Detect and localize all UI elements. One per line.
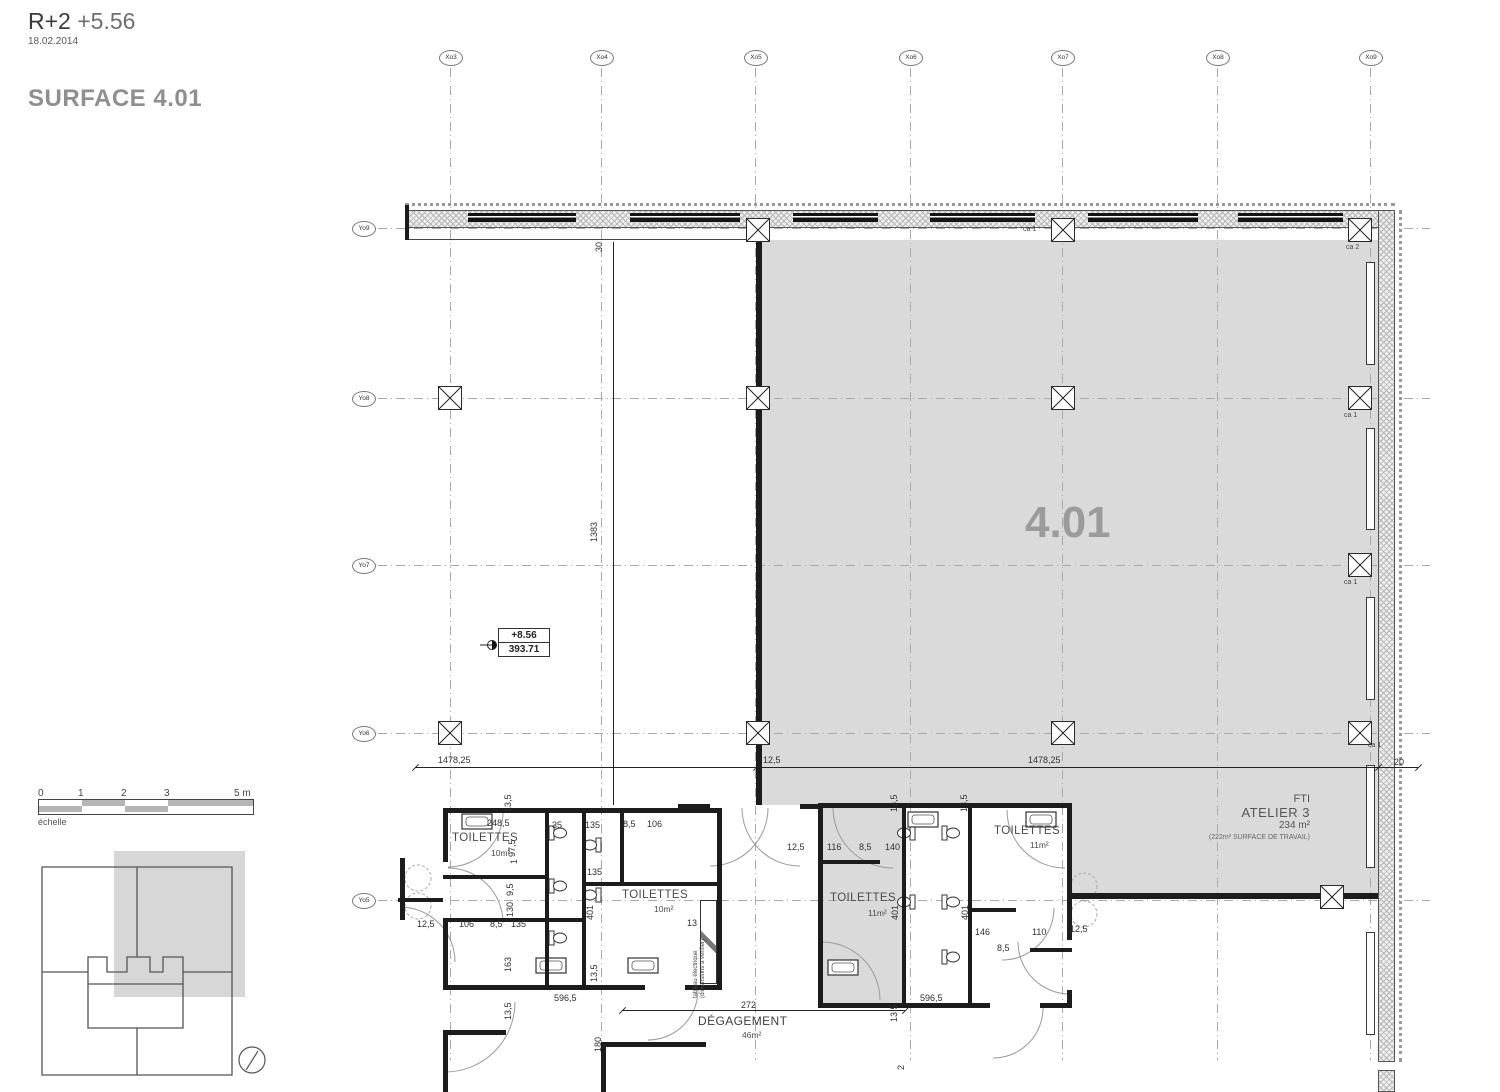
column-tag: ca 1 <box>1344 579 1357 586</box>
entry-wall-b <box>398 898 443 902</box>
room-label: TOILETTES <box>830 892 896 904</box>
grid-bubble-Yo9: Yo9 <box>352 221 376 237</box>
column <box>1051 386 1075 410</box>
window <box>1366 597 1375 700</box>
scale-tick-label: 0 <box>38 788 44 799</box>
dimension-label: 140 <box>885 842 900 852</box>
column-tag: ca 1 <box>1344 412 1357 419</box>
lt-west-wall-b <box>443 918 448 990</box>
column <box>1348 218 1372 242</box>
column <box>746 386 770 410</box>
frag-2 <box>448 1030 506 1035</box>
dimension-label: 106 <box>647 819 662 829</box>
scale-tick-label: 1 <box>78 788 84 799</box>
grid-bubble-Yo5: Yo5 <box>352 893 376 909</box>
dimension-label: 20 <box>1394 757 1404 767</box>
column-tag: ca 1 <box>1368 742 1381 749</box>
level-marker: +8.56 393.71 <box>498 628 550 657</box>
column <box>746 721 770 745</box>
frag-1 <box>443 1030 448 1092</box>
fti-line2: ATELIER 3 <box>1100 805 1310 820</box>
dimension-label: 163 <box>503 957 513 972</box>
dimension-label: 1478,25 <box>1028 755 1061 765</box>
column-tag: ca 1 <box>1023 226 1036 233</box>
lt-part-5 <box>582 882 720 886</box>
corridor-area: 46m² <box>742 1030 761 1040</box>
dimension-label: 135 <box>585 820 600 830</box>
key-plan-highlight <box>114 851 245 997</box>
dimension-label: 106 <box>459 919 474 929</box>
dimension-label: 401 <box>960 905 970 920</box>
window <box>1238 213 1343 222</box>
door-arc <box>742 808 800 866</box>
toilet-icon <box>942 895 960 909</box>
dimension-label: 130 <box>505 902 515 917</box>
scale-bar-graphic <box>38 799 254 815</box>
lt-east-wall <box>717 808 722 990</box>
drawing-overlay <box>0 0 1500 1092</box>
electrical-note: tableau électrique (dimensions à vérifie… <box>693 939 706 998</box>
window <box>1366 932 1375 1035</box>
level-marker-symbol <box>480 641 497 650</box>
grid-bubble-Yo6: Yo6 <box>352 726 376 742</box>
toilet-icon <box>898 895 916 909</box>
level-title: R+2 +5.56 <box>28 8 202 35</box>
window <box>1366 765 1375 868</box>
window <box>1366 262 1375 365</box>
mt-part-1 <box>902 803 906 1008</box>
lt-bottom-wall-a <box>443 985 645 990</box>
column <box>746 218 770 242</box>
dimension-label: 8,5 <box>997 943 1010 953</box>
column <box>1051 218 1075 242</box>
dimension-label: 13,5 <box>503 794 513 812</box>
sink-icon <box>628 958 658 973</box>
scale-tick-label: 5 m <box>234 788 251 799</box>
grid-bubble-Xo8: Xo8 <box>1206 50 1230 66</box>
sink-icon <box>908 812 938 827</box>
dimension-label: 401 <box>890 905 900 920</box>
fti-line3: 234 m² <box>1100 820 1310 831</box>
room-label: 11m² <box>868 908 887 918</box>
frag-4 <box>606 1042 706 1047</box>
dimension-label: 8,5 <box>623 819 636 829</box>
mt-east-wall-b <box>1067 990 1072 1008</box>
lt-part-3 <box>443 875 547 879</box>
level-relative: +8.56 <box>499 629 549 643</box>
north-facade-endcap <box>405 205 409 240</box>
grid-bubble-Xo7: Xo7 <box>1051 50 1075 66</box>
room-label: 10m² <box>654 904 673 914</box>
dimension-label: 110 <box>1032 927 1046 937</box>
corridor-label: DÉGAGEMENT <box>698 1014 787 1028</box>
sink-icon <box>536 958 566 973</box>
column <box>438 386 462 410</box>
mt-part-5 <box>1030 948 1072 952</box>
dimension-label: 13,5 <box>889 1004 899 1022</box>
dimension-label: 1478,25 <box>438 755 471 765</box>
title-block: R+2 +5.56 18.02.2014 SURFACE 4.01 <box>28 8 202 113</box>
mt-part-3 <box>818 860 880 864</box>
toilet-icon <box>549 931 567 945</box>
dimension-label: 12,5 <box>417 919 435 929</box>
north-facade-wall <box>405 203 1395 210</box>
floor-plan: R+2 +5.56 18.02.2014 SURFACE 4.01 <box>0 0 1500 1092</box>
window <box>468 213 576 222</box>
dimension-label: 13,5 <box>959 794 969 812</box>
dimension-label: 13,5 <box>589 964 599 982</box>
door-arc <box>833 808 893 868</box>
grid-bubble-Xo9: Xo9 <box>1359 50 1383 66</box>
grid-bubble-Yo7: Yo7 <box>352 558 376 574</box>
lt-part-2 <box>582 808 586 990</box>
fixtures <box>462 812 1056 975</box>
toilet-icon <box>549 879 567 893</box>
grid-bubble-Xo3: Xo3 <box>439 50 463 66</box>
dimension-label: 2 <box>896 1065 906 1070</box>
dashed-circle <box>405 865 431 891</box>
dashed-circle <box>405 893 431 919</box>
entry-wall-a <box>400 858 405 920</box>
dimension-label: 30 <box>594 242 604 252</box>
scale-ticks: 01235 m <box>38 788 254 799</box>
scale-bar: 01235 m échelle <box>38 788 254 827</box>
column-tag: ca 2 <box>1346 244 1359 251</box>
dimension-label: 248,5 <box>487 818 510 828</box>
dimension-label: 13,5 <box>889 794 899 812</box>
dimension-label: 146 <box>975 927 990 937</box>
electrical-note-line2: (dimensions à vérifier) <box>700 939 707 998</box>
grid-bubble-Xo5: Xo5 <box>744 50 768 66</box>
dimension-label: 8,5 <box>490 919 503 929</box>
door-arc <box>648 990 698 1040</box>
key-plan <box>42 851 265 1075</box>
sink-icon <box>828 960 858 975</box>
window <box>793 213 878 222</box>
grid-bubble-Xo4: Xo4 <box>590 50 614 66</box>
window <box>1366 428 1375 530</box>
toilet-icon <box>584 888 602 902</box>
column <box>1348 553 1372 577</box>
column <box>438 721 462 745</box>
dimension-label: 1383 <box>589 522 599 542</box>
dimension-label: 135 <box>511 919 526 929</box>
column <box>1348 386 1372 410</box>
dimension-label: 401 <box>585 905 595 920</box>
dimension-label: 13 <box>687 918 697 928</box>
dimension-label: 135 <box>587 867 602 877</box>
date-label: 18.02.2014 <box>28 36 202 47</box>
dimension-label: 97,5 <box>507 839 517 857</box>
lt-west-wall-a <box>443 808 448 862</box>
grid-bubble-Yo8: Yo8 <box>352 391 376 407</box>
dimension-label: 180 <box>593 1037 603 1052</box>
door-arc <box>993 1008 1043 1058</box>
room-number: 4.01 <box>1025 498 1111 548</box>
grid-bubble-Xo6: Xo6 <box>899 50 923 66</box>
level-absolute: 393.71 <box>499 643 549 656</box>
window <box>1088 213 1198 222</box>
north-arrow-needle <box>246 1051 258 1070</box>
dimension-label: 13,5 <box>503 1002 513 1020</box>
dimension-label: 1 <box>509 859 519 864</box>
column <box>1320 885 1344 909</box>
fti-line4: (222m² SURFACE DE TRAVAIL) <box>1100 834 1310 841</box>
room-label: 11m² <box>1030 840 1049 850</box>
room-label: TOILETTES <box>622 889 688 901</box>
room-west-wall <box>756 228 762 805</box>
toilet-icon <box>942 826 960 840</box>
dimension-label: 12,5 <box>1070 924 1088 934</box>
dimension-label: 8,5 <box>859 842 872 852</box>
dimension-label: 272 <box>741 1000 756 1010</box>
window <box>630 213 740 222</box>
dim-line-1383 <box>613 242 614 805</box>
window <box>930 213 1035 222</box>
mt-part-4 <box>968 908 1016 912</box>
dimension-label: 12,5 <box>787 842 805 852</box>
dimension-label: 596,5 <box>554 993 577 1003</box>
dimension-label: 116 <box>827 842 841 852</box>
dimension-label: 596,5 <box>920 993 943 1003</box>
lt-part-1 <box>545 808 549 990</box>
fti-annotation: FTI ATELIER 3 234 m² (222m² SURFACE DE T… <box>1100 793 1310 841</box>
toilet-icon <box>942 950 960 964</box>
scale-tick-label: 3 <box>164 788 170 799</box>
mt-west-wall <box>818 803 823 1008</box>
toilet-icon <box>584 838 602 852</box>
dimension-label: 35 <box>552 820 562 830</box>
scale-caption: échelle <box>38 817 254 827</box>
north-facade-inner-line <box>405 239 760 240</box>
toilet-icon <box>898 826 916 840</box>
elevation-label: +5.56 <box>77 8 135 34</box>
mt-top-wall <box>818 803 1072 808</box>
east-facade-edge <box>1395 210 1402 1062</box>
mt-east-wall-a <box>1067 803 1072 940</box>
dimension-label: 9,5 <box>505 883 515 896</box>
column <box>1051 721 1075 745</box>
level-label: R+2 <box>28 8 71 34</box>
dimension-label: 12,5 <box>763 755 781 765</box>
surface-title: SURFACE 4.01 <box>28 85 202 113</box>
room-label: TOILETTES <box>994 825 1060 837</box>
dim-line-272 <box>622 1010 905 1011</box>
scale-tick-label: 2 <box>121 788 127 799</box>
fti-line1: FTI <box>1100 793 1310 805</box>
dim-line-main <box>415 767 1418 768</box>
